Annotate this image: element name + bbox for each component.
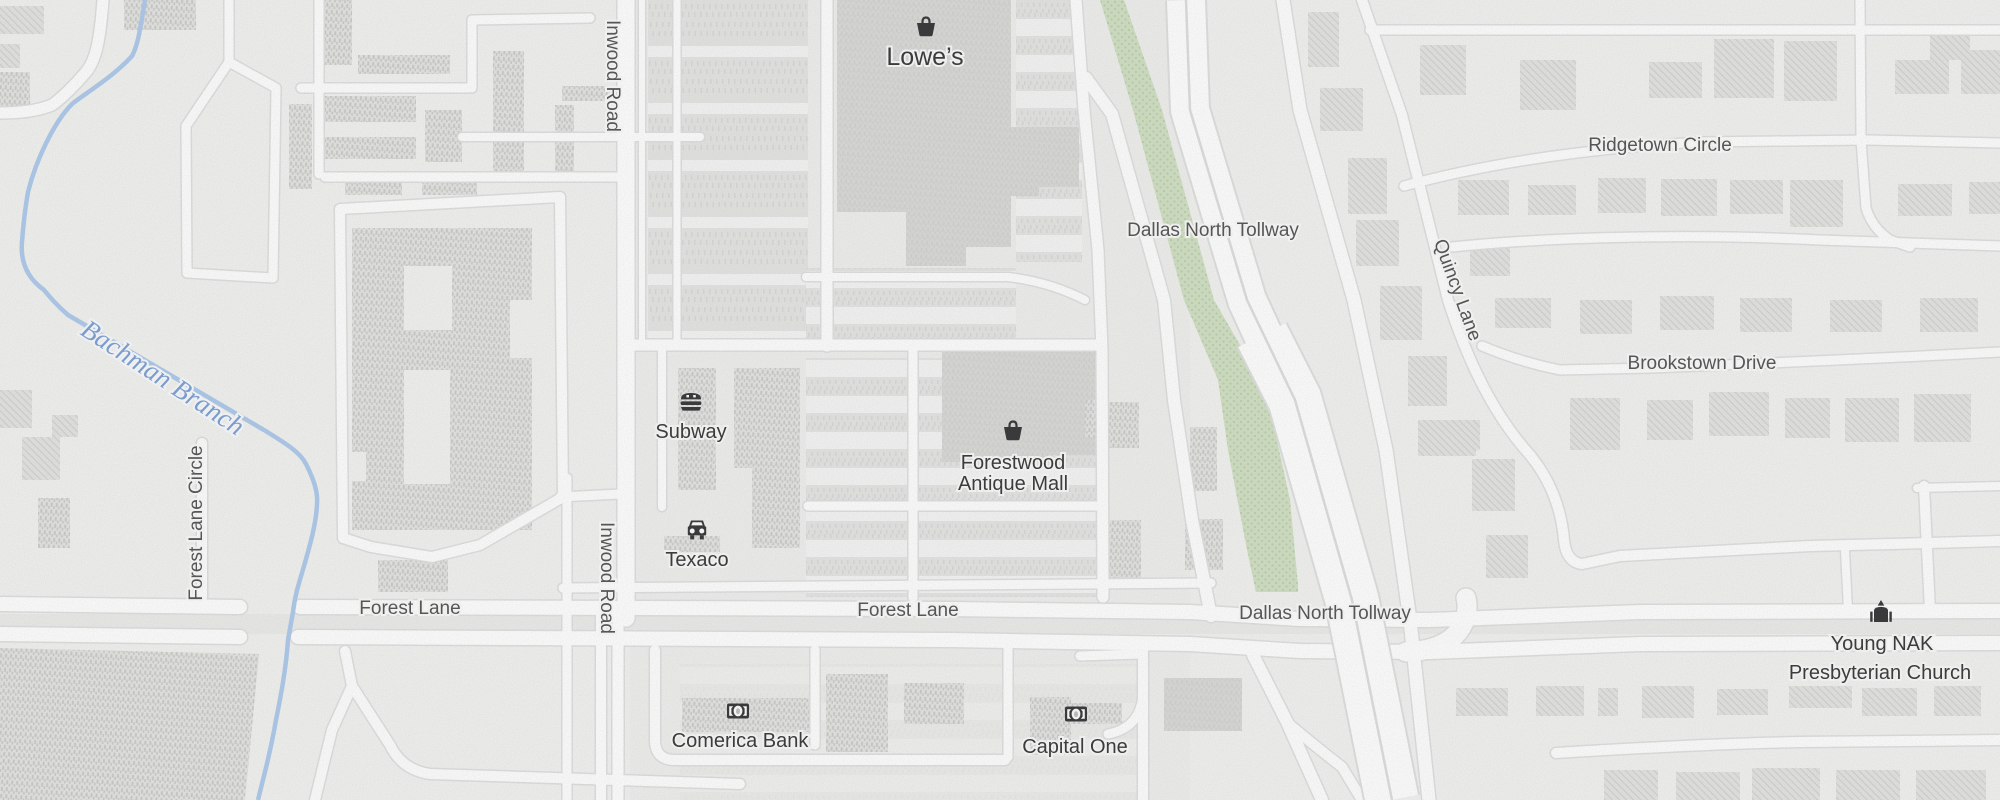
svg-text:Forest Lane Circle: Forest Lane Circle [186, 445, 207, 600]
svg-text:Forest Lane: Forest Lane [359, 598, 460, 619]
svg-text:Young NAK: Young NAK [1831, 633, 1934, 655]
svg-text:Dallas North Tollway: Dallas North Tollway [1127, 220, 1299, 241]
svg-text:Brookstown Drive: Brookstown Drive [1628, 353, 1777, 374]
svg-text:Antique Mall: Antique Mall [958, 473, 1068, 495]
svg-text:Dallas North Tollway: Dallas North Tollway [1239, 603, 1411, 624]
svg-text:Subway: Subway [655, 421, 726, 443]
svg-text:Inwood Road: Inwood Road [596, 522, 617, 634]
svg-text:Presbyterian Church: Presbyterian Church [1789, 662, 1971, 684]
svg-text:Ridgetown Circle: Ridgetown Circle [1588, 135, 1732, 156]
svg-text:Capital One: Capital One [1022, 736, 1128, 758]
svg-text:Lowe’s: Lowe’s [886, 43, 963, 71]
svg-text:Forest Lane: Forest Lane [857, 600, 958, 621]
svg-text:Inwood Road: Inwood Road [602, 20, 623, 132]
svg-text:Comerica Bank: Comerica Bank [672, 730, 810, 752]
svg-text:Texaco: Texaco [665, 549, 728, 571]
svg-text:Forestwood: Forestwood [961, 452, 1066, 474]
